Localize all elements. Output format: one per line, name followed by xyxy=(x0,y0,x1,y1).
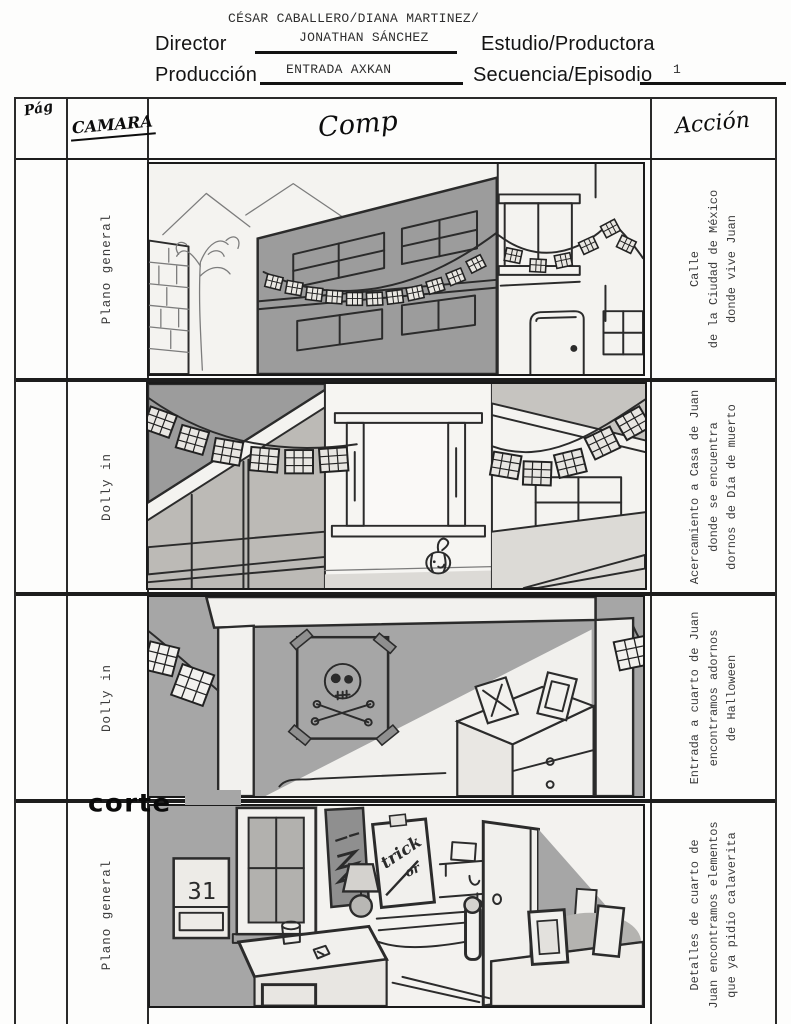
camera-note: Dolly in xyxy=(100,453,114,521)
skull-poster xyxy=(289,629,399,745)
secuencia-label: Secuencia/Episodio xyxy=(473,64,652,87)
action-note: Entrada a cuarto de Juan encontramos ado… xyxy=(686,611,742,784)
produccion-label: Producción xyxy=(155,64,257,87)
sketch-panel-1 xyxy=(147,162,645,376)
row-divider-1 xyxy=(16,378,775,382)
sketch-panel-4: 31 trick or xyxy=(148,804,645,1008)
page-column-header: Pág xyxy=(23,99,54,120)
produccion-value: ENTRADA AXKAN xyxy=(286,62,391,77)
action-cell-row2: Acercamiento a Casa de Juan donde se enc… xyxy=(651,382,777,592)
produccion-underline xyxy=(260,82,463,85)
camera-cell-row1: Plano general xyxy=(67,160,147,378)
right-building xyxy=(498,164,643,374)
window xyxy=(233,808,320,943)
action-line: que ya pidio calaverita xyxy=(723,821,742,1008)
camera-note: Plano general xyxy=(100,214,114,325)
action-note: Calle de la Ciudad de México donde vive … xyxy=(686,190,742,348)
door-post-left xyxy=(218,626,254,796)
header-cell-camera: CAMARA xyxy=(67,99,147,158)
calendar: 31 xyxy=(174,858,229,938)
house-closeup-sketch xyxy=(148,384,645,588)
director-value-line2: JONATHAN SÁNCHEZ xyxy=(299,30,429,45)
action-line: encontramos adornos xyxy=(705,611,724,784)
action-column-header: Acción xyxy=(674,108,751,139)
corte-annotation: corte xyxy=(88,790,172,819)
camera-note: Plano general xyxy=(100,859,114,970)
director-value-line1: CÉSAR CABALLERO/DIANA MARTINEZ/ xyxy=(228,11,479,26)
action-line: de la Ciudad de México xyxy=(705,190,724,348)
sketch-bleed xyxy=(185,790,241,805)
action-note: Acercamiento a Casa de Juan donde se enc… xyxy=(686,390,742,584)
action-line: Calle xyxy=(686,190,705,348)
action-line: donde se encuentra xyxy=(705,390,724,584)
estudio-label: Estudio/Productora xyxy=(481,33,655,56)
calendar-day: 31 xyxy=(187,877,215,905)
camera-cell-row2: Dolly in xyxy=(67,382,147,592)
header-cell-page: Pág xyxy=(16,99,66,158)
action-line: Detalles de cuarto de xyxy=(686,821,705,1008)
header-cell-frame: Comp xyxy=(148,99,650,158)
action-cell-row1: Calle de la Ciudad de México donde vive … xyxy=(651,160,777,378)
secuencia-underline xyxy=(640,82,786,85)
sketch-panel-2 xyxy=(146,382,647,590)
director-underline xyxy=(255,51,457,54)
street-scene-sketch xyxy=(149,164,643,374)
action-line: Entrada a cuarto de Juan xyxy=(686,611,705,784)
action-line: donde vive Juan xyxy=(723,190,742,348)
director-label: Director xyxy=(155,33,227,56)
camera-column-header: CAMARA xyxy=(69,111,156,141)
action-line: Acercamiento a Casa de Juan xyxy=(686,390,705,584)
camera-cell-row3: Dolly in xyxy=(67,596,147,799)
frame-column-header: Comp xyxy=(317,106,399,144)
action-line: de Halloween xyxy=(723,611,742,784)
action-cell-row4: Detalles de cuarto de Juan encontramos e… xyxy=(651,803,777,1024)
action-note: Detalles de cuarto de Juan encontramos e… xyxy=(686,821,742,1008)
camera-note: Dolly in xyxy=(100,663,114,731)
action-cell-row3: Entrada a cuarto de Juan encontramos ado… xyxy=(651,596,777,799)
storyboard-page: Director CÉSAR CABALLERO/DIANA MARTINEZ/… xyxy=(0,0,791,1024)
header-cell-action: Acción xyxy=(651,99,777,158)
room-entrance-sketch xyxy=(149,597,643,796)
camera-cell-row4: Plano general xyxy=(67,803,147,1024)
door-knob xyxy=(570,345,577,352)
sketch-panel-3 xyxy=(147,595,645,798)
secuencia-value: 1 xyxy=(673,62,681,77)
room-details-sketch: 31 trick or xyxy=(150,806,643,1006)
trick-or-treat-poster: trick or xyxy=(372,812,435,907)
action-line: Juan encontramos elementos xyxy=(705,821,724,1008)
center-wall-and-window xyxy=(325,384,492,588)
action-line: dornos de Día de muerto xyxy=(723,390,742,584)
